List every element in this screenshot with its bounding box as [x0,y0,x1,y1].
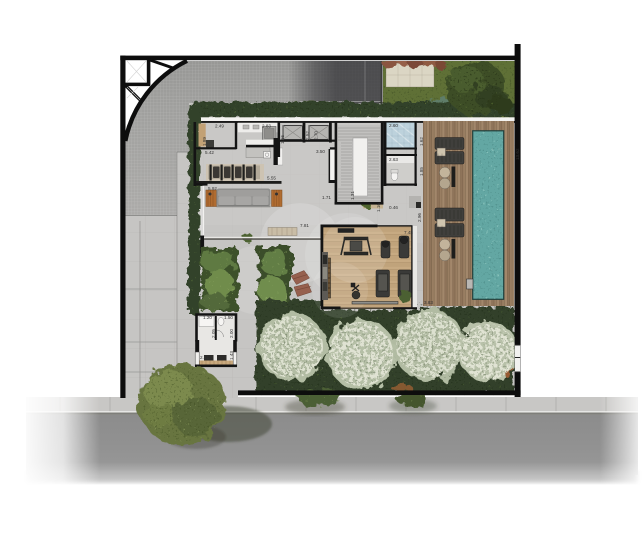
svg-text:5.92: 5.92 [208,186,217,191]
svg-text:1.50: 1.50 [224,315,233,320]
svg-text:1.31: 1.31 [350,191,355,200]
svg-text:1.20: 1.20 [203,315,212,320]
svg-text:1.16: 1.16 [376,203,381,212]
svg-text:1.71: 1.71 [322,195,331,200]
svg-text:1.85: 1.85 [419,167,424,176]
svg-text:7.81: 7.81 [300,223,309,228]
svg-text:2.63: 2.63 [389,157,398,162]
svg-text:1.89: 1.89 [202,137,207,146]
svg-text:2.96: 2.96 [417,213,422,222]
svg-text:7.48: 7.48 [404,230,413,235]
svg-text:2.05: 2.05 [211,329,216,338]
svg-text:1.43: 1.43 [229,351,234,360]
svg-text:2.83: 2.83 [262,124,271,129]
svg-text:2.52: 2.52 [305,131,310,140]
svg-text:2.70: 2.70 [314,131,319,140]
svg-text:5.55: 5.55 [267,176,276,181]
svg-text:2.81: 2.81 [200,355,209,360]
svg-text:1.62: 1.62 [419,137,424,146]
svg-text:3.50: 3.50 [316,149,325,154]
svg-text:3.83: 3.83 [424,300,433,305]
svg-text:13.62: 13.62 [515,148,520,160]
svg-text:5.42: 5.42 [205,150,214,155]
svg-text:0.46: 0.46 [389,205,398,210]
svg-text:1.66: 1.66 [280,135,285,144]
svg-text:2.49: 2.49 [215,124,224,129]
svg-text:2.00: 2.00 [229,329,234,338]
svg-text:2.60: 2.60 [389,123,398,128]
